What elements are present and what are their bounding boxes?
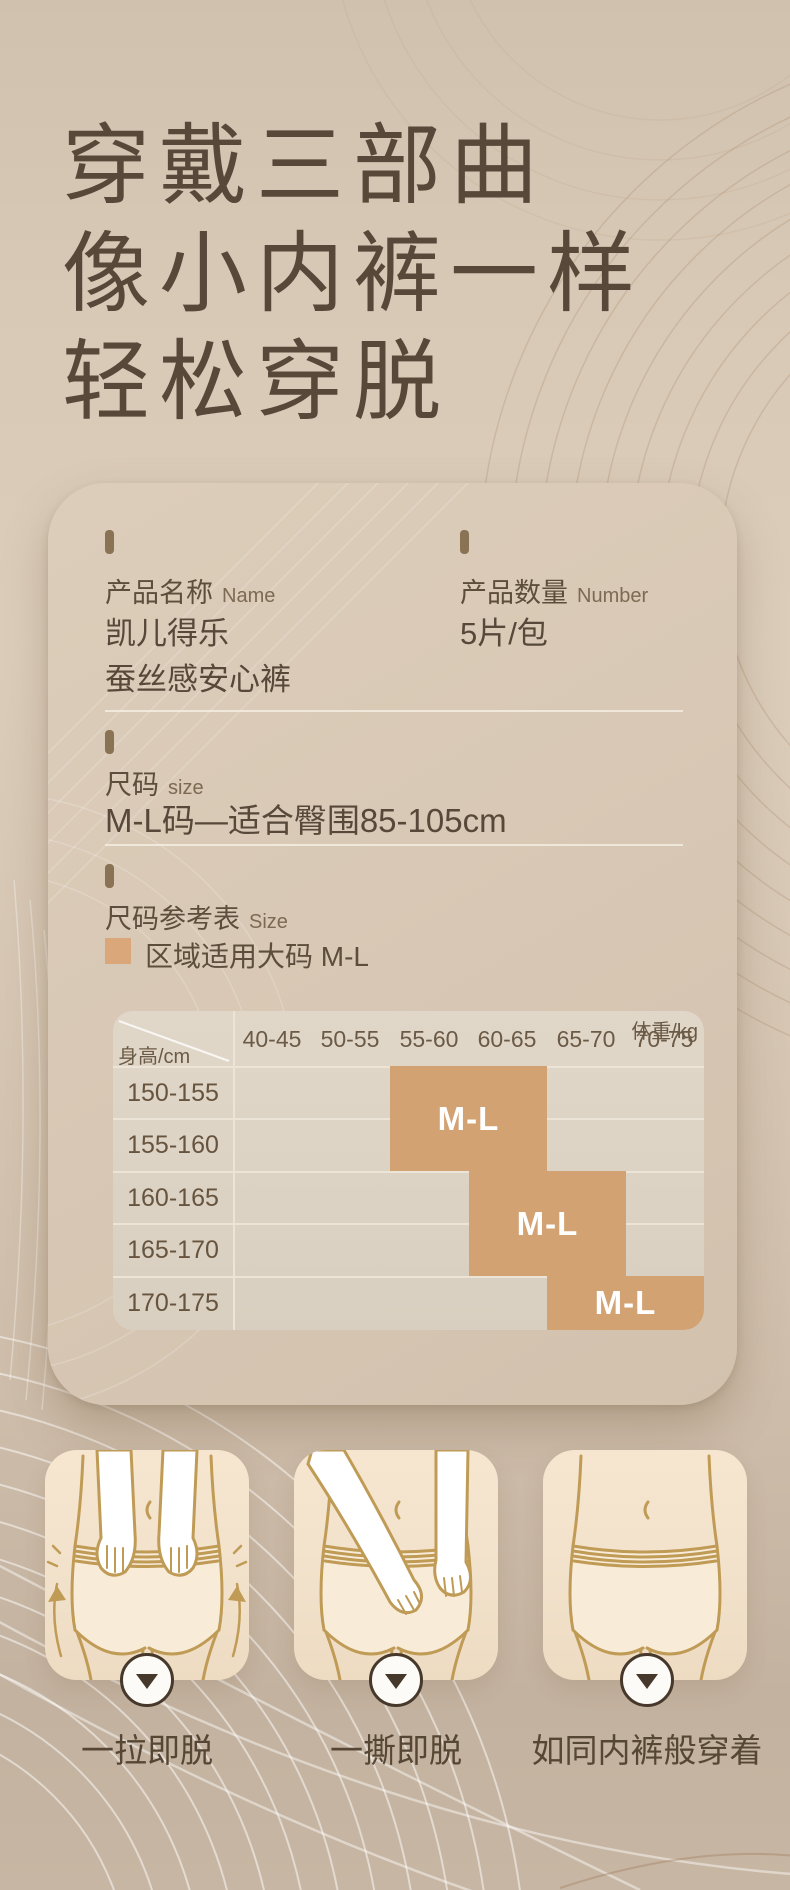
title-line-3: 轻松穿脱 <box>62 328 644 436</box>
row-header: 165-170 <box>113 1236 233 1265</box>
col-header: 65-70 <box>547 1026 625 1053</box>
down-arrow-icon <box>636 1674 658 1689</box>
product-poster: 穿戴三部曲 像小内裤一样 轻松穿脱 产品名称Name 凯儿得乐 蚕丝感安心裤 产… <box>0 0 790 1890</box>
title-line-2: 像小内裤一样 <box>62 220 644 328</box>
down-arrow-badge <box>620 1653 674 1707</box>
quantity-label-cn: 产品数量 <box>460 578 568 608</box>
title-line-1: 穿戴三部曲 <box>62 112 644 220</box>
down-arrow-badge <box>369 1653 423 1707</box>
down-arrow-badge <box>120 1653 174 1707</box>
col-header: 70-75 <box>625 1026 703 1053</box>
product-name-label-en: Name <box>222 585 275 607</box>
product-name-label-cn: 产品名称 <box>105 578 213 608</box>
highlight-zone-2: M-L <box>469 1171 626 1276</box>
product-name-label: 产品名称Name <box>105 571 275 610</box>
size-chart-label-en: Size <box>249 911 288 933</box>
size-chart-label-cn: 尺码参考表 <box>105 904 240 934</box>
size-label-en: size <box>168 777 204 799</box>
legend-label: 区域适用大码 M-L <box>145 935 369 975</box>
quantity-value: 5片/包 <box>460 611 548 657</box>
divider <box>105 710 683 712</box>
size-label: 尺码size <box>105 763 204 802</box>
section-tick <box>105 864 114 888</box>
product-name-value: 凯儿得乐 蚕丝感安心裤 <box>105 611 291 703</box>
size-chart-label: 尺码参考表Size <box>105 897 288 936</box>
size-label-cn: 尺码 <box>105 770 159 800</box>
step-caption-1: 一拉即脱 <box>19 1724 275 1772</box>
row-header: 170-175 <box>113 1289 233 1318</box>
divider <box>105 844 683 846</box>
step-card-wear <box>543 1450 747 1680</box>
size-value: M-L码—适合臀围85-105cm <box>105 798 507 844</box>
highlight-zone-1: M-L <box>390 1066 547 1171</box>
legend-swatch <box>105 938 131 964</box>
section-tick <box>460 530 469 554</box>
section-tick <box>105 730 114 754</box>
section-tick <box>105 530 114 554</box>
page-title: 穿戴三部曲 像小内裤一样 轻松穿脱 <box>62 112 644 436</box>
down-arrow-icon <box>385 1674 407 1689</box>
step-card-pull <box>45 1450 249 1680</box>
col-header: 40-45 <box>233 1026 311 1053</box>
size-reference-table: 体重/kg 身高/cm 40-45 50-55 55-60 60-65 65-7… <box>113 1011 704 1330</box>
step-caption-2: 一撕即脱 <box>268 1724 524 1772</box>
quantity-label-en: Number <box>577 585 648 607</box>
pull-off-illustration <box>45 1450 249 1680</box>
col-header: 55-60 <box>390 1026 468 1053</box>
tear-off-illustration <box>294 1450 498 1680</box>
row-header: 150-155 <box>113 1079 233 1108</box>
highlight-zone-3: M-L <box>547 1276 704 1330</box>
down-arrow-icon <box>136 1674 158 1689</box>
row-header: 155-160 <box>113 1131 233 1160</box>
corner-height-label: 身高/cm <box>118 1040 190 1069</box>
row-header: 160-165 <box>113 1184 233 1213</box>
col-header: 60-65 <box>468 1026 546 1053</box>
step-card-tear <box>294 1450 498 1680</box>
quantity-label: 产品数量Number <box>460 571 648 610</box>
col-header: 50-55 <box>311 1026 389 1053</box>
step-caption-3: 如同内裤般穿着 <box>519 1724 775 1772</box>
product-info-card: 产品名称Name 凯儿得乐 蚕丝感安心裤 产品数量Number 5片/包 尺码s… <box>48 483 737 1405</box>
worn-like-underwear-illustration <box>543 1450 747 1680</box>
